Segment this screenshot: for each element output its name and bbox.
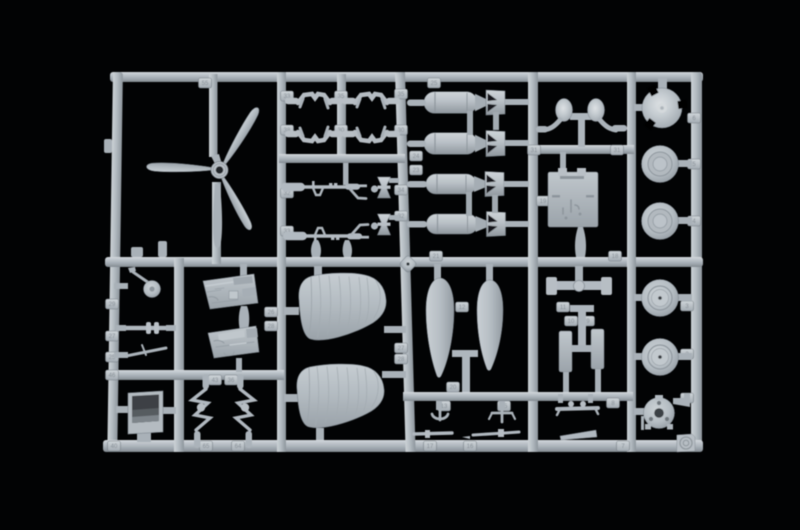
svg-text:25: 25 [431, 81, 438, 87]
svg-text:64: 64 [235, 444, 242, 450]
svg-text:31: 31 [531, 148, 538, 154]
svg-text:18: 18 [612, 254, 619, 260]
svg-text:65: 65 [203, 444, 210, 450]
svg-text:23: 23 [413, 168, 420, 174]
svg-text:19: 19 [540, 199, 547, 205]
svg-text:55: 55 [202, 81, 209, 87]
svg-text:36: 36 [228, 378, 235, 384]
svg-text:27: 27 [398, 346, 405, 352]
svg-text:34: 34 [398, 188, 405, 194]
svg-text:11: 11 [560, 305, 567, 311]
svg-text:12: 12 [459, 305, 466, 311]
svg-text:10: 10 [568, 319, 575, 325]
svg-text:29: 29 [109, 302, 116, 308]
svg-text:21: 21 [433, 254, 440, 260]
svg-text:17: 17 [427, 444, 434, 450]
svg-text:26: 26 [268, 310, 275, 316]
svg-text:20: 20 [450, 385, 457, 391]
svg-text:32: 32 [284, 191, 291, 197]
svg-text:43: 43 [212, 378, 219, 384]
svg-text:40: 40 [111, 444, 118, 450]
svg-text:24: 24 [413, 154, 420, 160]
svg-text:46: 46 [109, 373, 116, 379]
svg-text:16: 16 [467, 444, 474, 450]
svg-text:31: 31 [614, 148, 621, 154]
svg-text:28: 28 [398, 357, 405, 363]
svg-text:35: 35 [398, 92, 405, 98]
svg-text:28: 28 [268, 324, 275, 330]
svg-text:27: 27 [109, 334, 116, 340]
